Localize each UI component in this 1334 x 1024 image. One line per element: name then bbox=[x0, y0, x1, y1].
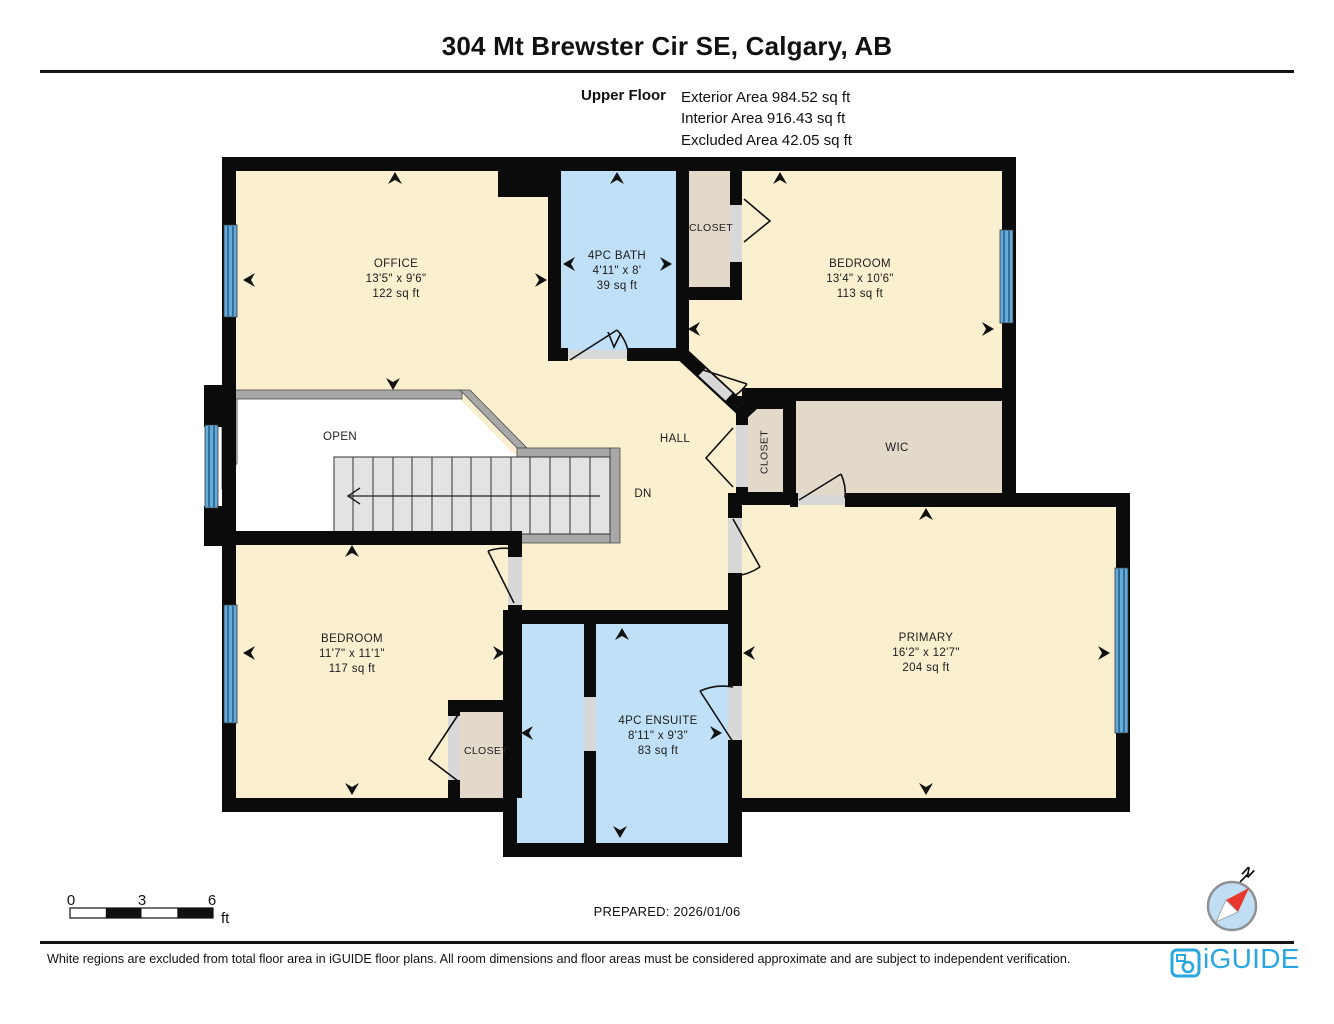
room-name: BEDROOM bbox=[319, 632, 385, 647]
room-dims: 13'4" x 10'6" bbox=[826, 272, 894, 287]
room-name: OFFICE bbox=[366, 257, 427, 272]
room-name: CLOSET bbox=[689, 221, 733, 236]
room-area: 83 sq ft bbox=[618, 744, 697, 759]
window-icon bbox=[1115, 568, 1128, 733]
room-name: DN bbox=[634, 487, 651, 502]
window-icon bbox=[224, 225, 237, 317]
room-label-closet-ne: CLOSET bbox=[689, 221, 733, 236]
room-dims: 13'5" x 9'6" bbox=[366, 272, 427, 287]
room-label-hall: HALL bbox=[660, 432, 690, 447]
room-name: CLOSET bbox=[758, 430, 773, 474]
room-name: OPEN bbox=[323, 430, 357, 445]
room-name: CLOSET bbox=[464, 744, 508, 759]
room-dims: 4'11" x 8' bbox=[588, 264, 646, 279]
room-label-bedroom-ne: BEDROOM 13'4" x 10'6" 113 sq ft bbox=[826, 257, 894, 302]
room-dims: 8'11" x 9'3" bbox=[618, 729, 697, 744]
room-area: 122 sq ft bbox=[366, 287, 427, 302]
room-name: 4PC BATH bbox=[588, 249, 646, 264]
floor-plan-page: 304 Mt Brewster Cir SE, Calgary, AB Uppe… bbox=[0, 0, 1334, 1024]
compass-icon bbox=[1208, 873, 1256, 930]
room-label-bedroom-sw: BEDROOM 11'7" x 11'1" 117 sq ft bbox=[319, 632, 385, 677]
room-name: PRIMARY bbox=[892, 631, 960, 646]
room-dims: 11'7" x 11'1" bbox=[319, 647, 385, 662]
window-icon bbox=[205, 425, 218, 508]
footer-disclaimer: White regions are excluded from total fl… bbox=[47, 952, 1070, 966]
footer-divider bbox=[40, 941, 1294, 944]
prepared-date: PREPARED: 2026/01/06 bbox=[0, 904, 1334, 919]
iguide-wordmark: iGUIDE bbox=[1203, 943, 1300, 975]
room-label-closet-hall: CLOSET bbox=[758, 430, 773, 474]
room-label-open: OPEN bbox=[323, 430, 357, 445]
room-name: 4PC ENSUITE bbox=[618, 714, 697, 729]
room-label-office: OFFICE 13'5" x 9'6" 122 sq ft bbox=[366, 257, 427, 302]
window-icon bbox=[1000, 230, 1013, 323]
floor-plan-svg bbox=[0, 0, 1334, 1024]
room-label-primary: PRIMARY 16'2" x 12'7" 204 sq ft bbox=[892, 631, 960, 676]
staircase bbox=[334, 457, 610, 534]
room-name: BEDROOM bbox=[826, 257, 894, 272]
room-label-wic: WIC bbox=[885, 441, 908, 456]
room-area: 204 sq ft bbox=[892, 661, 960, 676]
room-name: HALL bbox=[660, 432, 690, 447]
room-area: 113 sq ft bbox=[826, 287, 894, 302]
room-area: 39 sq ft bbox=[588, 279, 646, 294]
room-area: 117 sq ft bbox=[319, 662, 385, 677]
room-label-closet-sw: CLOSET bbox=[464, 744, 508, 759]
room-dims: 16'2" x 12'7" bbox=[892, 646, 960, 661]
room-label-bath: 4PC BATH 4'11" x 8' 39 sq ft bbox=[588, 249, 646, 294]
room-name: WIC bbox=[885, 441, 908, 456]
stairs-dn-label: DN bbox=[634, 487, 651, 502]
window-icon bbox=[224, 605, 237, 723]
iguide-logo-icon bbox=[1172, 950, 1199, 976]
room-label-ensuite: 4PC ENSUITE 8'11" x 9'3" 83 sq ft bbox=[618, 714, 697, 759]
